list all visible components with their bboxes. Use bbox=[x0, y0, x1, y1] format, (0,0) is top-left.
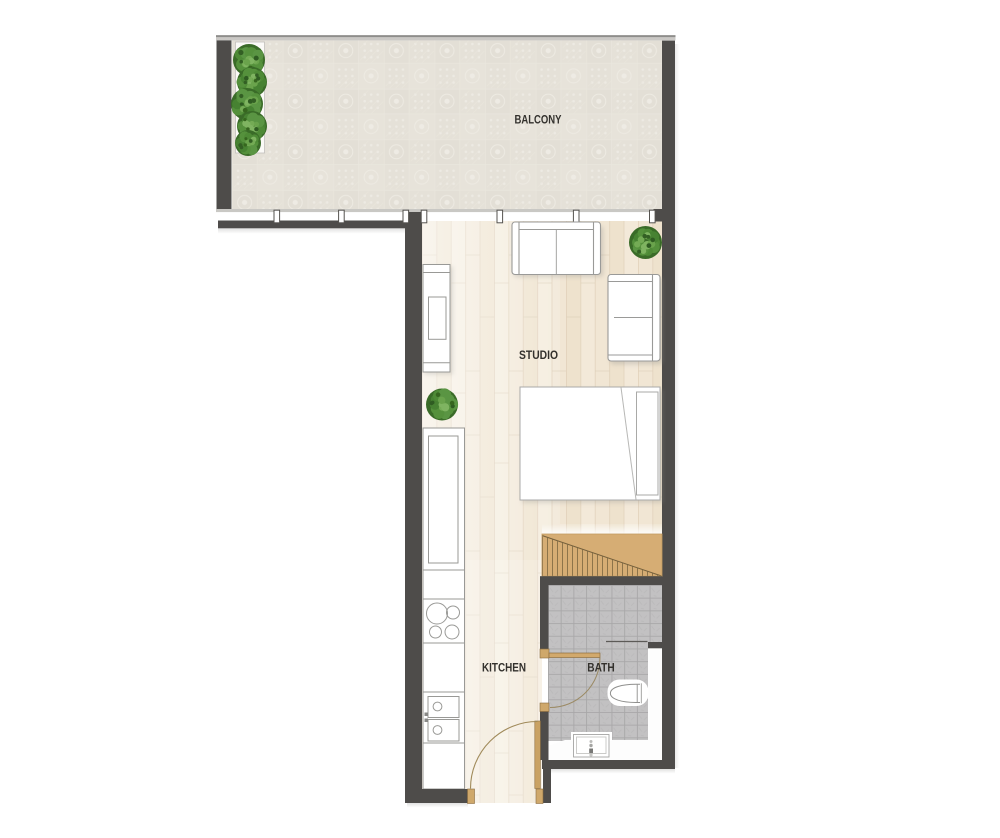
svg-text:BATH: BATH bbox=[587, 660, 615, 674]
svg-text:BALCONY: BALCONY bbox=[515, 112, 562, 126]
svg-text:STUDIO: STUDIO bbox=[519, 348, 558, 362]
svg-text:KITCHEN: KITCHEN bbox=[482, 660, 526, 674]
